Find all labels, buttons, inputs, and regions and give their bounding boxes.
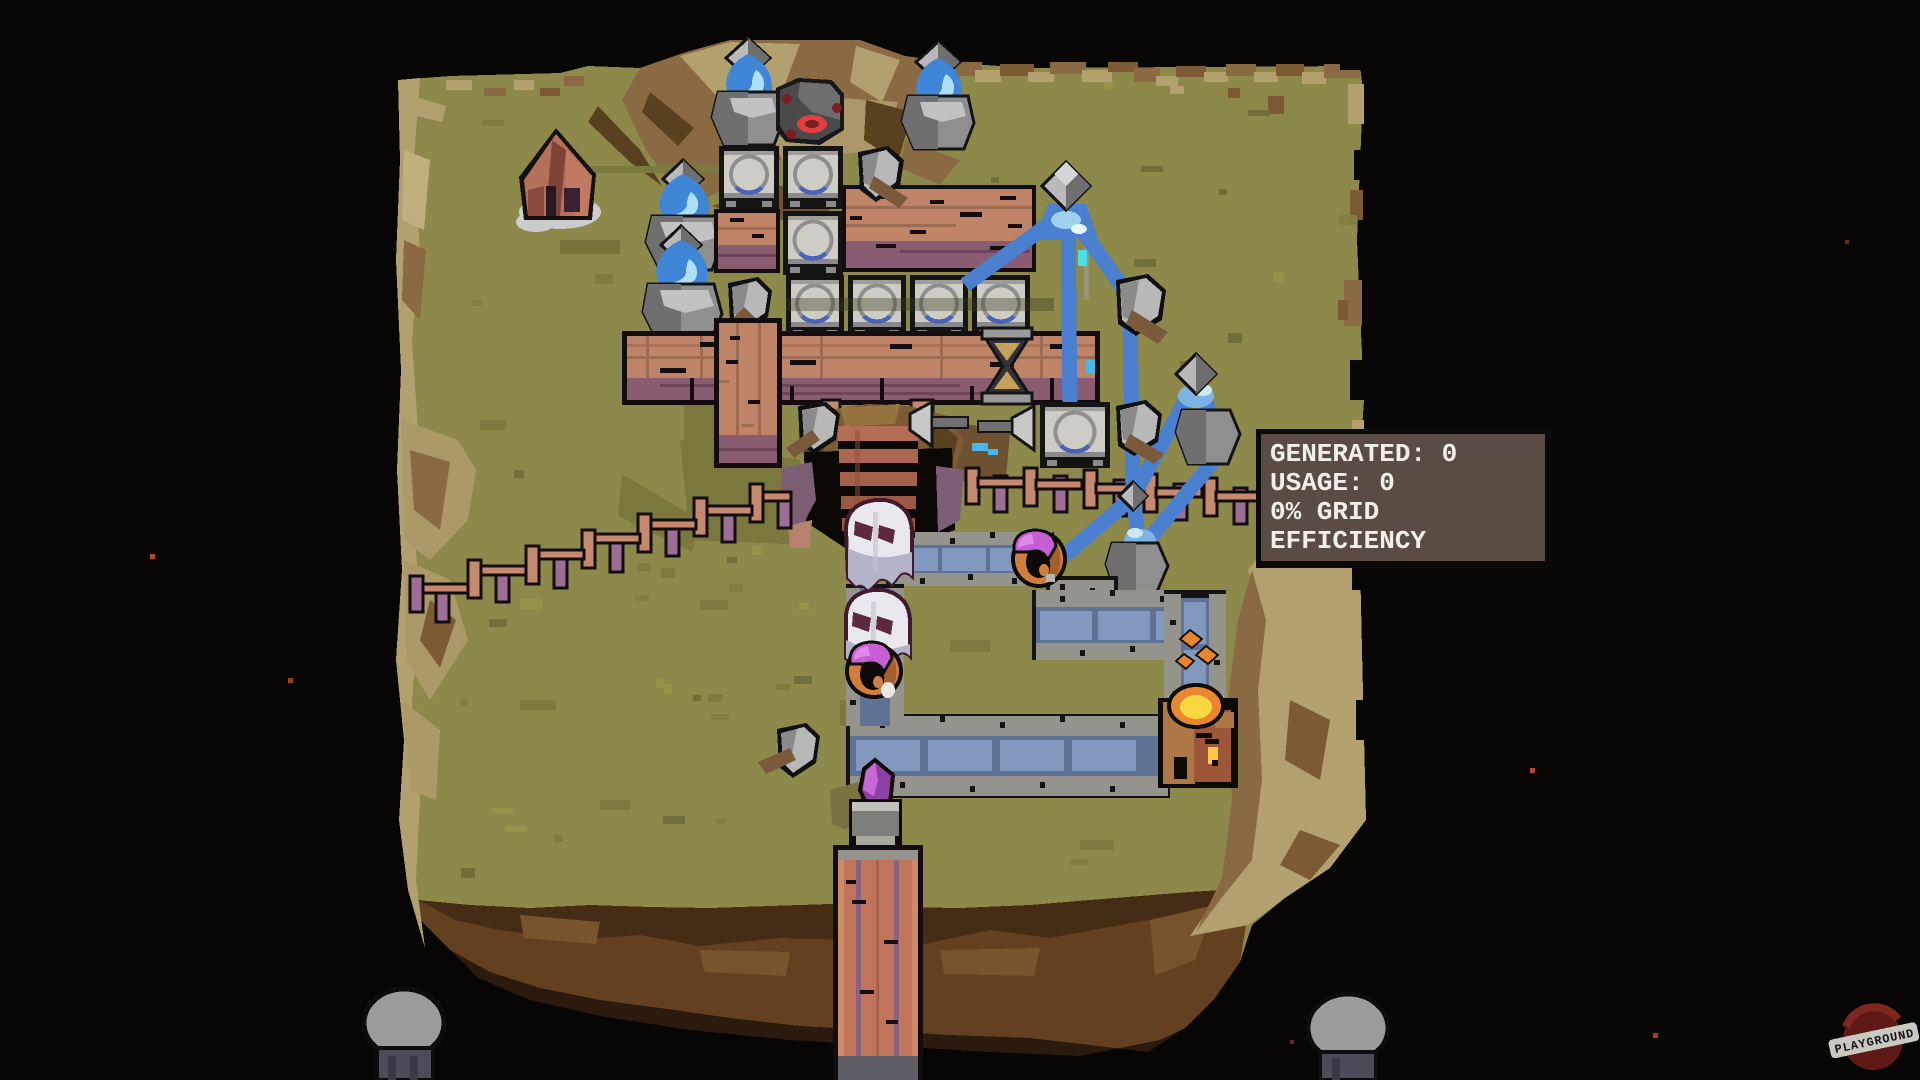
- svg-text:0% GRID: 0% GRID: [1270, 497, 1379, 527]
- svg-text:GENERATED: 0: GENERATED: 0: [1270, 439, 1457, 469]
- svg-text:EFFICIENCY: EFFICIENCY: [1270, 526, 1426, 556]
- svg-text:USAGE: 0: USAGE: 0: [1270, 468, 1395, 498]
